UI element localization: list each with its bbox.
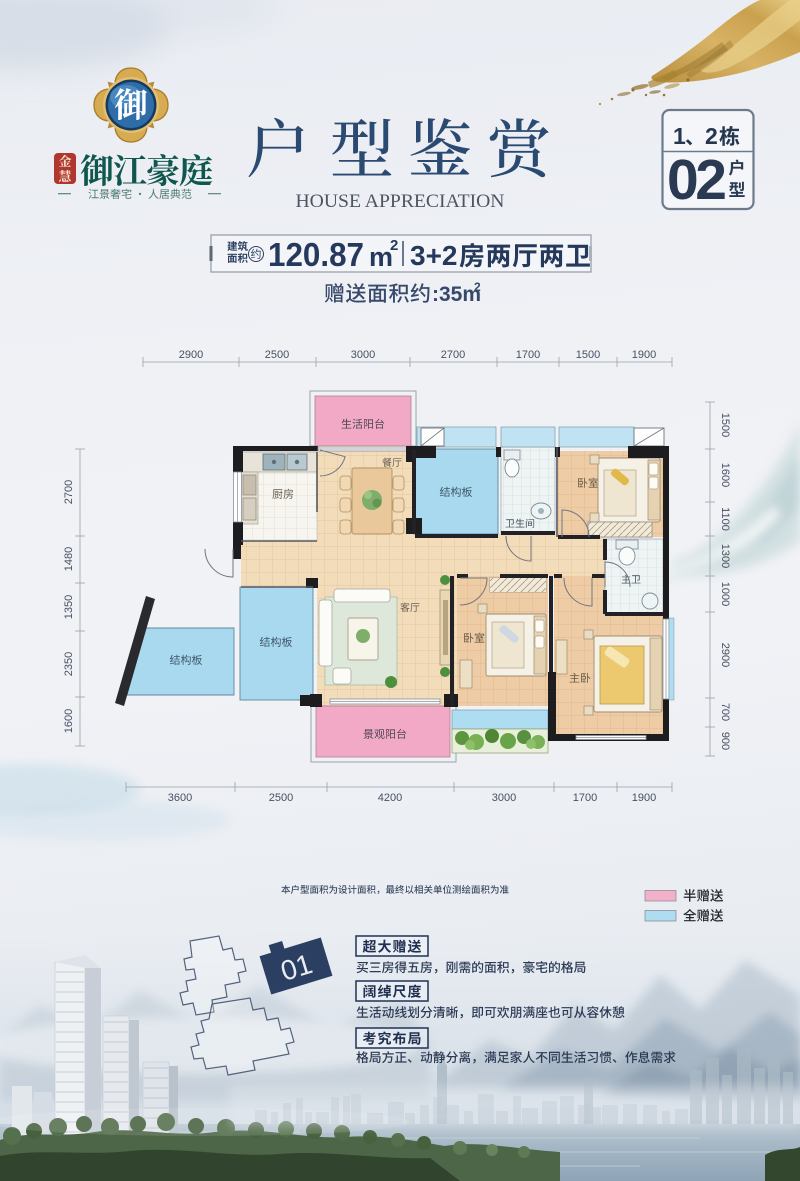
svg-text:2: 2 <box>390 237 398 254</box>
svg-text:1600: 1600 <box>63 709 75 733</box>
svg-text:700: 700 <box>719 703 731 721</box>
svg-text:900: 900 <box>719 732 731 750</box>
svg-text:2900: 2900 <box>719 643 731 667</box>
svg-text:2: 2 <box>705 123 718 149</box>
svg-text:3000: 3000 <box>492 792 516 804</box>
svg-text:2500: 2500 <box>265 349 289 361</box>
svg-text:3000: 3000 <box>351 349 375 361</box>
svg-text:HOUSE APPRECIATION: HOUSE APPRECIATION <box>296 191 505 212</box>
svg-text:4200: 4200 <box>378 792 402 804</box>
svg-text:02: 02 <box>667 148 727 212</box>
svg-text:1100: 1100 <box>719 507 731 531</box>
svg-text:2900: 2900 <box>179 349 203 361</box>
svg-text:1500: 1500 <box>719 413 731 437</box>
svg-text:3+2: 3+2 <box>410 240 458 271</box>
svg-text:2350: 2350 <box>63 652 75 676</box>
svg-text:2700: 2700 <box>441 349 465 361</box>
svg-text:1700: 1700 <box>573 792 597 804</box>
svg-text:1480: 1480 <box>63 547 75 571</box>
svg-text:2: 2 <box>474 280 481 294</box>
svg-text:1300: 1300 <box>719 544 731 568</box>
svg-text:1350: 1350 <box>63 595 75 619</box>
svg-text:1700: 1700 <box>516 349 540 361</box>
svg-text:2500: 2500 <box>269 792 293 804</box>
svg-text:1000: 1000 <box>719 582 731 606</box>
svg-text:1500: 1500 <box>576 349 600 361</box>
svg-text:120.87: 120.87 <box>268 236 364 273</box>
svg-text:1900: 1900 <box>632 349 656 361</box>
svg-text:3600: 3600 <box>168 792 192 804</box>
svg-text:1: 1 <box>673 123 686 149</box>
svg-text:1600: 1600 <box>719 463 731 487</box>
svg-text:2700: 2700 <box>63 480 75 504</box>
svg-text:1900: 1900 <box>632 792 656 804</box>
